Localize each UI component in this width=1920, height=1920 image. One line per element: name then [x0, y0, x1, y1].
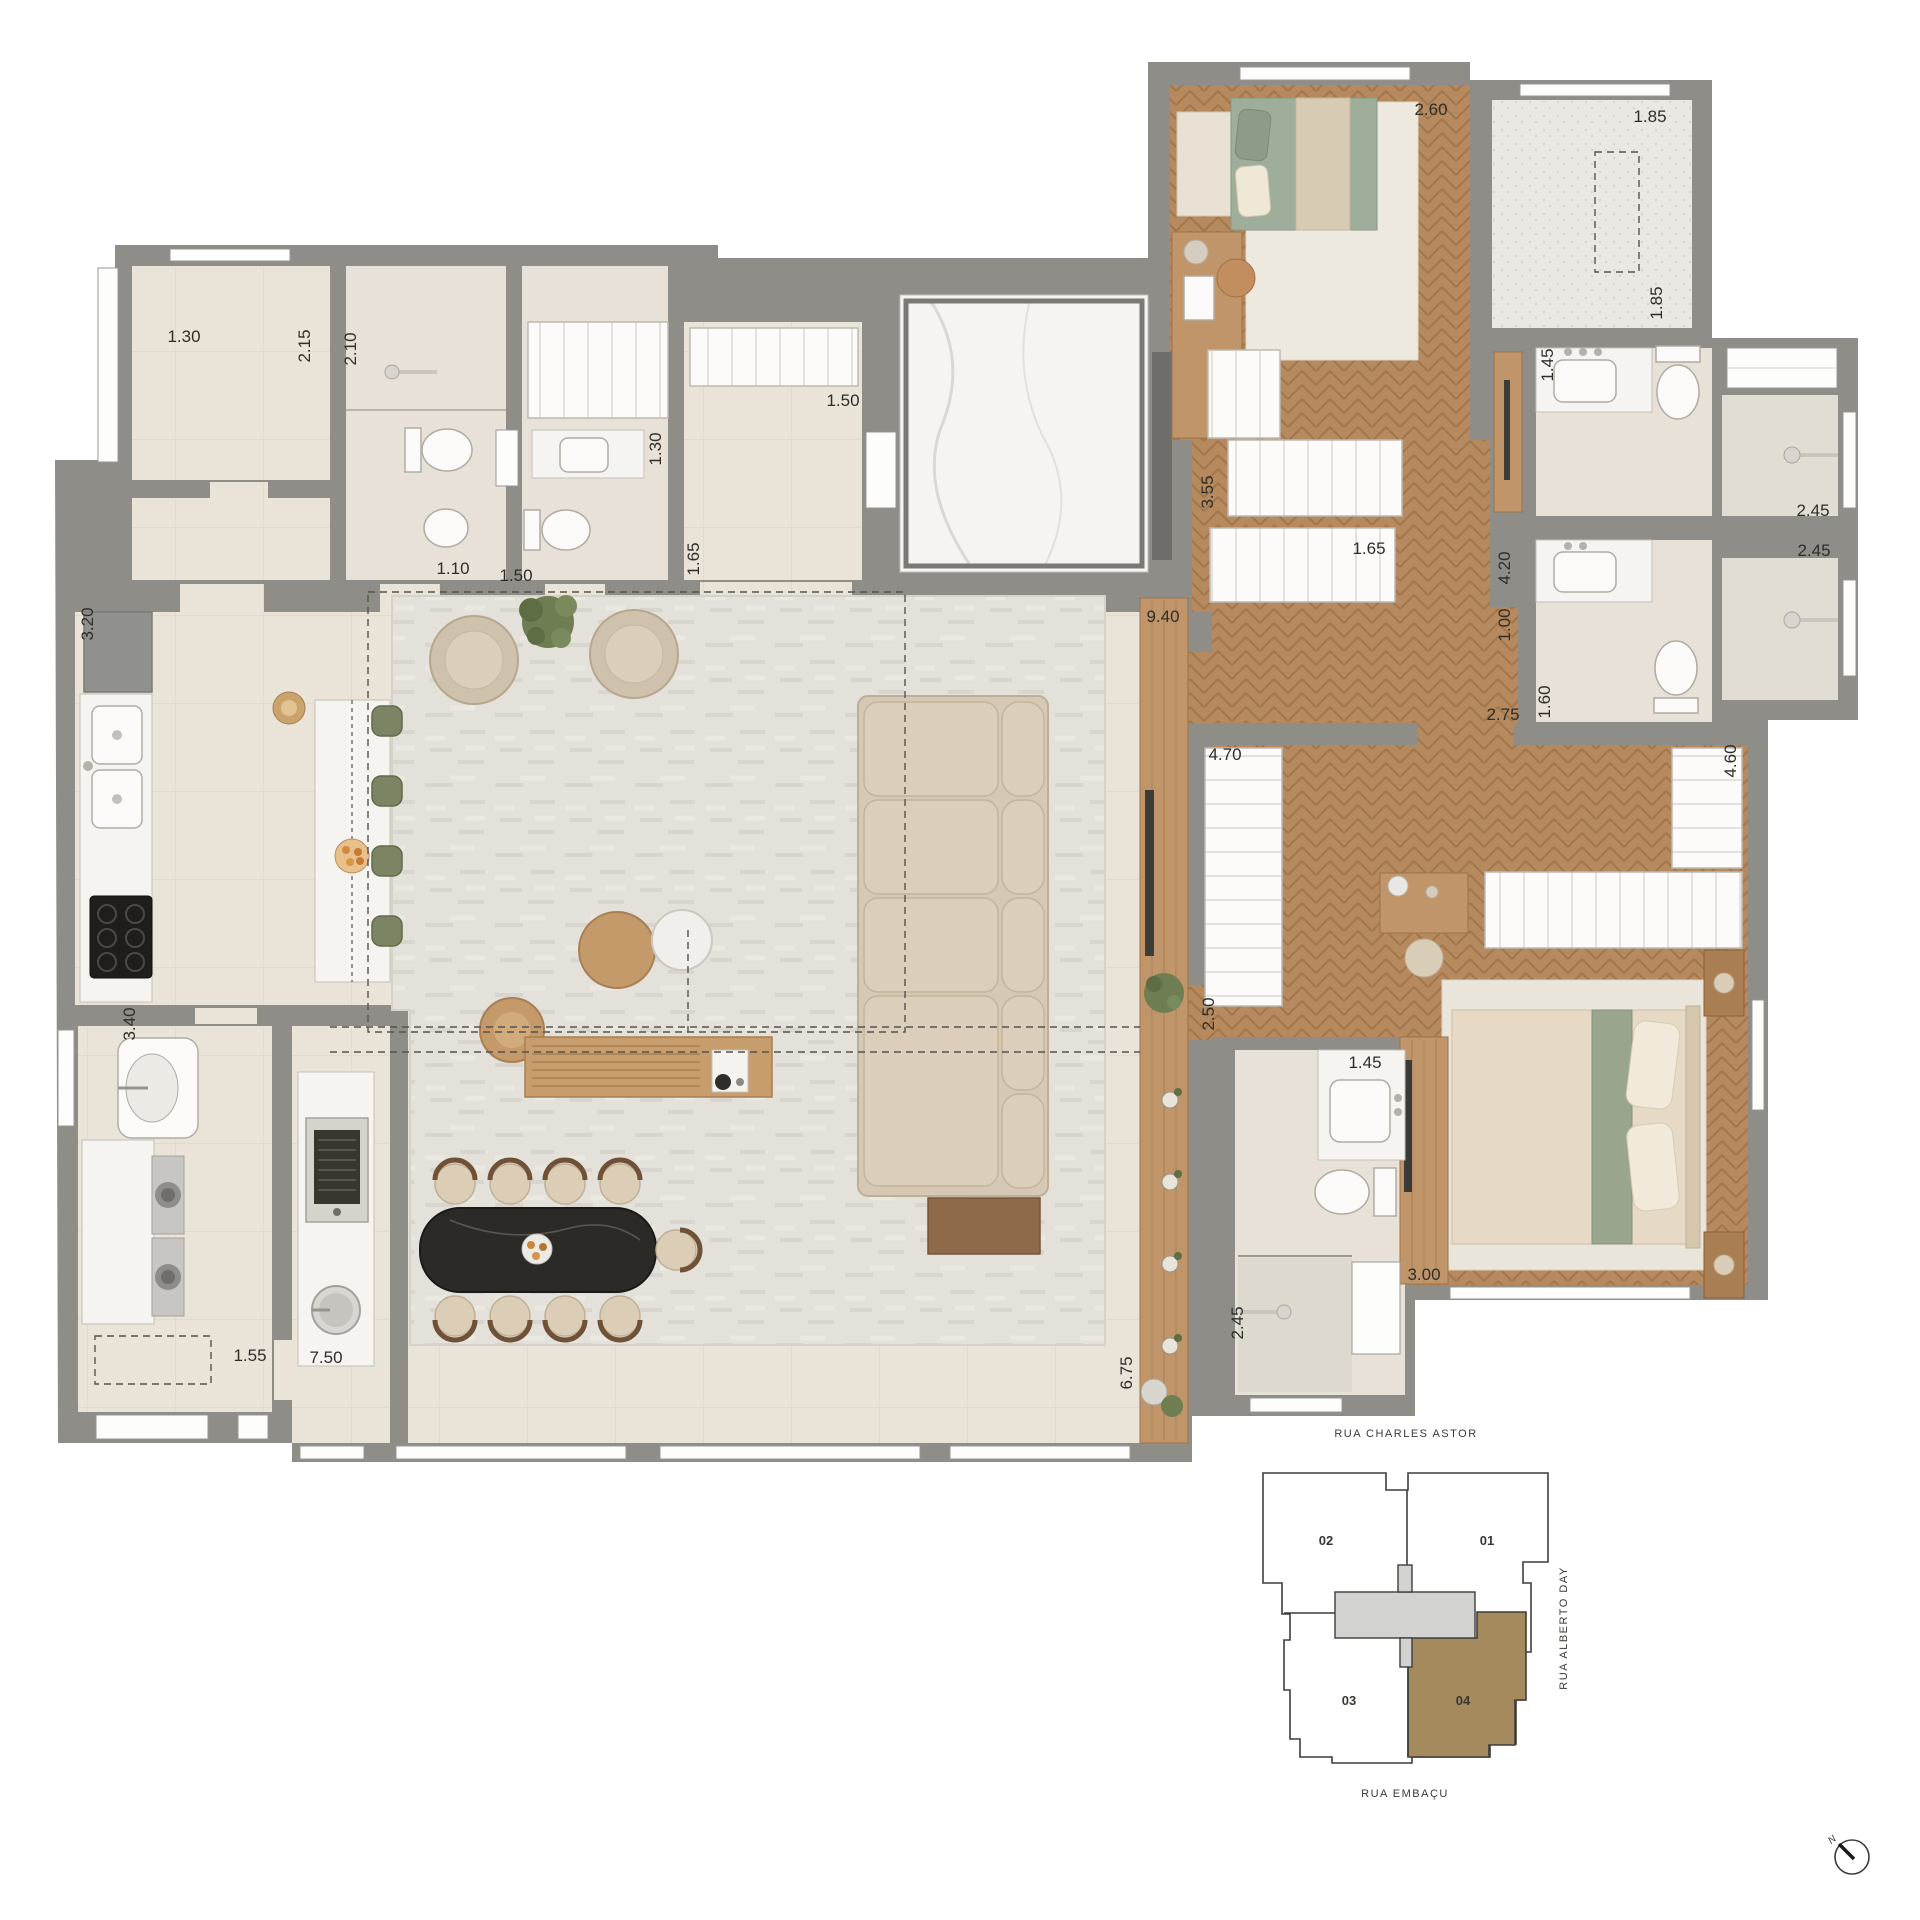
dim-corridor-420: 4.20	[1495, 551, 1514, 584]
dim-living-w: 9.40	[1146, 607, 1179, 626]
sofa-end-table	[928, 1198, 1040, 1254]
desk-chair	[1217, 259, 1255, 297]
window-balcony-1	[300, 1446, 364, 1459]
closet	[528, 322, 668, 418]
dim-laundry-155: 1.55	[233, 1346, 266, 1365]
foyer-closet	[690, 328, 858, 386]
wardrobe-355	[1228, 440, 1402, 516]
toilet-tank-icon	[1656, 346, 1700, 362]
shower-head-icon	[1784, 447, 1800, 463]
wine-bar	[1140, 598, 1188, 1443]
window-laundry-bottom1	[96, 1415, 208, 1439]
dim-storage-h: 2.15	[295, 329, 314, 362]
shower-head-icon	[385, 365, 399, 379]
grill-wall	[390, 1005, 408, 1443]
fruit-bowl-icon	[335, 839, 369, 873]
window-laundry-left	[58, 1030, 74, 1126]
window-bedroom1	[1240, 67, 1410, 80]
dim-bedroom1: 2.60	[1414, 100, 1447, 119]
grill-area	[298, 1072, 374, 1366]
compass: N	[1826, 1833, 1869, 1874]
dim-wardrobe-460: 4.60	[1721, 744, 1740, 777]
lamp-icon2	[1714, 1255, 1734, 1275]
bed-headboard	[1686, 1006, 1700, 1248]
keyplan-unit01-label: 01	[1480, 1533, 1494, 1548]
hall-tv-icon	[1504, 380, 1510, 480]
elevator-door	[1152, 352, 1172, 560]
dim-kitchen-320: 3.20	[78, 607, 97, 640]
shaft	[496, 430, 518, 486]
dim-wardrobe-470: 4.70	[1208, 745, 1241, 764]
toilet-tank-icon	[1654, 698, 1698, 713]
dim-corridor-100: 1.00	[1495, 608, 1514, 641]
dim-living-675: 6.75	[1117, 1356, 1136, 1389]
window-laundry-bottom2	[238, 1415, 268, 1439]
shower-floor	[1238, 1258, 1352, 1392]
desk-drawers	[1184, 276, 1214, 320]
bedroom1-wardrobe	[1208, 350, 1280, 438]
corridor-floor	[1212, 607, 1518, 723]
compass-needle	[1839, 1844, 1854, 1859]
window-balcony-2	[396, 1446, 626, 1459]
toilet-icon	[422, 429, 472, 471]
faucet-icon	[83, 761, 93, 771]
toilet-tank-icon	[405, 428, 421, 472]
floor-plan-canvas: 2.60 1.85 1.85 1.30 2.15 2.10 1.10 1.50 …	[0, 0, 1920, 1920]
shower-head-icon	[1784, 612, 1800, 628]
toilet-icon	[1657, 365, 1699, 419]
dim-suite-300: 3.00	[1407, 1265, 1440, 1284]
wc-sink-icon	[560, 438, 608, 472]
kitchen	[80, 612, 152, 1002]
window-balcony-4	[950, 1446, 1130, 1459]
bed1-pillow	[1234, 108, 1271, 161]
dim-foyer-h: 1.65	[684, 542, 703, 575]
toilet-tank-icon	[1374, 1168, 1396, 1216]
window-bath2	[1843, 580, 1856, 676]
dim-bath1: 1.45	[1538, 348, 1557, 381]
bath1-sink-icon	[1554, 360, 1616, 402]
mbath-sink-icon	[1330, 1080, 1390, 1142]
window-suite-bottom	[1450, 1287, 1690, 1299]
room-storage-floor	[132, 266, 330, 480]
window-terrace	[1520, 84, 1670, 96]
sideboard	[525, 1037, 772, 1097]
elevator-core	[866, 295, 1172, 572]
compass-north-label: N	[1826, 1833, 1839, 1847]
dim-hall-250: 2.50	[1199, 997, 1218, 1030]
bath2-sink-icon	[1554, 552, 1616, 592]
bed1-pillow2	[1235, 165, 1271, 218]
street-top-label: RUA CHARLES ASTOR	[1334, 1428, 1477, 1440]
shower-head-icon	[1277, 1305, 1291, 1319]
bed1-headboard	[1177, 112, 1231, 216]
shower2-floor	[1722, 558, 1838, 700]
bidet-icon	[424, 509, 468, 547]
dim-shower1: 2.45	[1796, 501, 1829, 520]
toilet-icon	[1315, 1170, 1369, 1214]
door-gap-storage	[210, 482, 268, 498]
dim-wc-counter: 1.30	[646, 432, 665, 465]
dim-foyer-w: 1.50	[826, 391, 859, 410]
keyplan-unit04-label: 04	[1456, 1693, 1471, 1708]
dim-closet-355: 3.55	[1198, 475, 1217, 508]
key-plan: 02 01 03 04 RUA CHARLES ASTOR RUA ALBERT…	[1263, 1428, 1570, 1800]
window-storage-ledge	[98, 268, 118, 462]
grill-top-wall	[292, 1005, 408, 1026]
tv-icon	[1145, 790, 1154, 956]
dim-laundry-340: 3.40	[120, 1007, 139, 1040]
sofa	[858, 696, 1048, 1254]
corridor-suite-door-floor	[1418, 723, 1514, 745]
street-right-label: RUA ALBERTO DAY	[1558, 1566, 1570, 1689]
dim-terrace-h: 1.85	[1647, 286, 1666, 319]
window-suite-right	[1752, 1000, 1764, 1110]
dim-mbath-w: 1.45	[1348, 1053, 1381, 1072]
dim-terrace-w: 1.85	[1633, 107, 1666, 126]
floor-plan-page: 2.60 1.85 1.85 1.30 2.15 2.10 1.10 1.50 …	[0, 0, 1920, 1920]
window-service-top	[170, 249, 290, 261]
door-gap-grill	[274, 1340, 292, 1400]
wardrobe-long	[1485, 872, 1742, 948]
dim-mbath-h: 2.45	[1228, 1306, 1247, 1339]
window-masterbath	[1250, 1398, 1342, 1412]
bed-pillow2	[1626, 1122, 1681, 1212]
foyer-entry-door	[866, 432, 896, 508]
dim-corridor-275: 2.75	[1486, 705, 1519, 724]
dim-balcony-750: 7.50	[309, 1348, 342, 1367]
window-bath1	[1843, 412, 1856, 508]
lamp-icon	[1714, 973, 1734, 993]
window-balcony-3	[660, 1446, 920, 1459]
dim-wc-w: 1.50	[499, 566, 532, 585]
wardrobe-470	[1205, 748, 1282, 1006]
bed-runner	[1592, 1010, 1632, 1244]
dim-closet-165: 1.65	[1352, 539, 1385, 558]
grill-icon	[314, 1130, 360, 1204]
shaft	[1352, 1262, 1400, 1354]
hall-door-gap	[1188, 652, 1212, 724]
keyplan-unit03-label: 03	[1342, 1693, 1356, 1708]
laundry-counter	[82, 1140, 154, 1324]
vanity-tray	[1426, 886, 1438, 898]
toilet-icon	[1655, 641, 1697, 695]
bed1-blanket	[1296, 98, 1350, 230]
street-bottom-label: RUA EMBAÇU	[1361, 1788, 1449, 1800]
vanity-pouf	[1405, 939, 1443, 977]
bed-pillow	[1625, 1020, 1681, 1111]
dim-servicebath-h: 2.10	[341, 332, 360, 365]
toilet-tank-icon	[524, 510, 540, 550]
dim-servicebath-w: 1.10	[436, 559, 469, 578]
dim-storage-w: 1.30	[167, 327, 200, 346]
door-gap-laundry	[195, 1008, 257, 1024]
keyplan-unit02-label: 02	[1319, 1533, 1333, 1548]
dim-bath2-160: 1.60	[1535, 685, 1554, 718]
desk-tray	[1184, 240, 1208, 264]
vanity-mirror	[1388, 876, 1408, 896]
dining-chair-end	[656, 1230, 696, 1270]
toilet-icon	[542, 510, 590, 550]
dim-shower2: 2.45	[1797, 541, 1830, 560]
service-corridor-floor	[132, 498, 330, 580]
door-gap-1	[180, 584, 264, 612]
